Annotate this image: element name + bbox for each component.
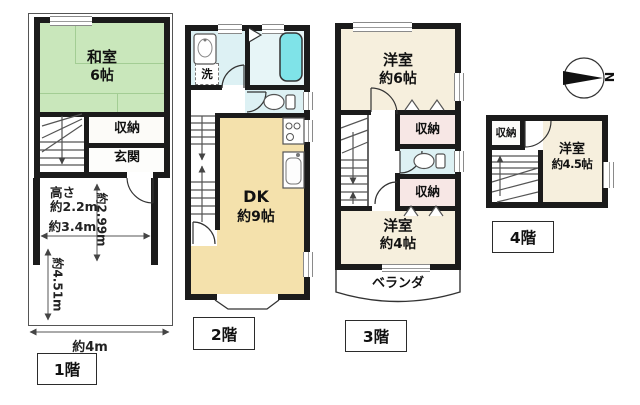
floor4-closet-label: 収納 [492, 127, 520, 139]
floor3-toilet-room [400, 149, 455, 174]
floor2-bay-window-icon [215, 300, 279, 309]
window-icon [262, 24, 284, 34]
room-name: 洋室 [559, 142, 585, 157]
floor2-laundry-pan: 洗 [195, 63, 219, 85]
laundry-label: 洗 [201, 66, 213, 82]
floor3-veranda-label: ベランダ [360, 276, 436, 291]
floor4-wall [486, 115, 608, 121]
floor1-wall [40, 112, 164, 117]
floor2-wall [185, 25, 191, 300]
floor3-wall [395, 144, 461, 149]
floor2-wall [245, 31, 250, 85]
floor2-label-box: 2階 [193, 317, 255, 350]
floor3-wall [341, 110, 371, 115]
floor1-carport-wall [151, 178, 158, 265]
floor3-label-box: 3階 [345, 320, 407, 352]
window-icon [303, 120, 313, 142]
floor2-wall [215, 113, 310, 118]
floor3-wall [335, 264, 382, 270]
dim-height-label: 高さ 約2.2m [50, 186, 98, 214]
floor1-carport-wall [33, 178, 40, 265]
floor1-label-box: 1階 [37, 353, 97, 385]
dim-text: 約2.2m [50, 199, 98, 214]
window-icon [303, 92, 313, 110]
floor2-bathroom [250, 31, 304, 85]
floor4-wall [486, 145, 525, 150]
window-icon [218, 24, 242, 34]
floor-plan: 和室 6帖 収納 玄関 高さ 約2.2m 約2.99m 約3.4m 約4.51m… [0, 0, 640, 405]
window-icon [353, 22, 412, 32]
floor3-wall [430, 264, 461, 270]
room-name: 洋室 [384, 219, 413, 235]
floor1-entrance-label: 玄関 [90, 150, 164, 165]
floor3-wall [395, 206, 461, 211]
floor3-closet-lower-label: 収納 [400, 185, 455, 200]
veranda-door-icon [382, 264, 430, 272]
floor4-wall [486, 202, 608, 208]
compass-north-label: N [600, 69, 616, 85]
tatami-line [117, 93, 118, 112]
floor4-room45-label: 洋室 約4.5帖 [540, 142, 604, 173]
compass-icon [563, 58, 604, 98]
tatami-line [40, 93, 164, 94]
dim-451-label: 約4.51m [50, 254, 67, 316]
dim-text: 高さ [50, 185, 75, 200]
floor2-wall [191, 85, 222, 90]
room-name: 和室 [87, 48, 117, 66]
floor3-wall [341, 206, 372, 211]
floor1-wall [84, 112, 89, 172]
floor3-room6-label: 洋室 約6帖 [340, 52, 456, 87]
floor4-wall [520, 121, 525, 145]
floor3-wall [396, 110, 455, 115]
floor1-wall [34, 17, 40, 178]
floor3-wall [395, 174, 461, 179]
room-size: 約6帖 [379, 71, 417, 87]
room-size: 約4.5帖 [552, 157, 593, 171]
floor1-wall [84, 143, 170, 148]
floor1-washitsu-label: 和室 6帖 [42, 49, 162, 84]
window-icon [454, 151, 464, 172]
window-icon [603, 162, 614, 188]
floor3-room4-label: 洋室 約4帖 [341, 219, 455, 253]
window-icon [50, 16, 92, 26]
floor2-wall [245, 85, 310, 90]
room-size: 6帖 [90, 68, 114, 84]
floor1-wall [164, 17, 170, 178]
floor2-wall [185, 294, 217, 300]
window-icon [303, 252, 313, 277]
floor4-label-box: 4階 [492, 221, 554, 253]
floor2-dk-label: DK 約9帖 [211, 188, 301, 226]
room-name: DK [243, 187, 269, 206]
floor2-wall [278, 294, 310, 300]
floor1-closet-label: 収納 [90, 121, 164, 136]
floor3-closet-upper-label: 収納 [400, 122, 455, 137]
floor1-wall [34, 172, 127, 178]
room-name: 洋室 [383, 51, 413, 69]
room-size: 約9帖 [237, 209, 275, 225]
dim-34-label: 約3.4m [45, 216, 100, 235]
room-size: 約4帖 [380, 236, 416, 252]
floor2-toilet-room [245, 90, 304, 113]
